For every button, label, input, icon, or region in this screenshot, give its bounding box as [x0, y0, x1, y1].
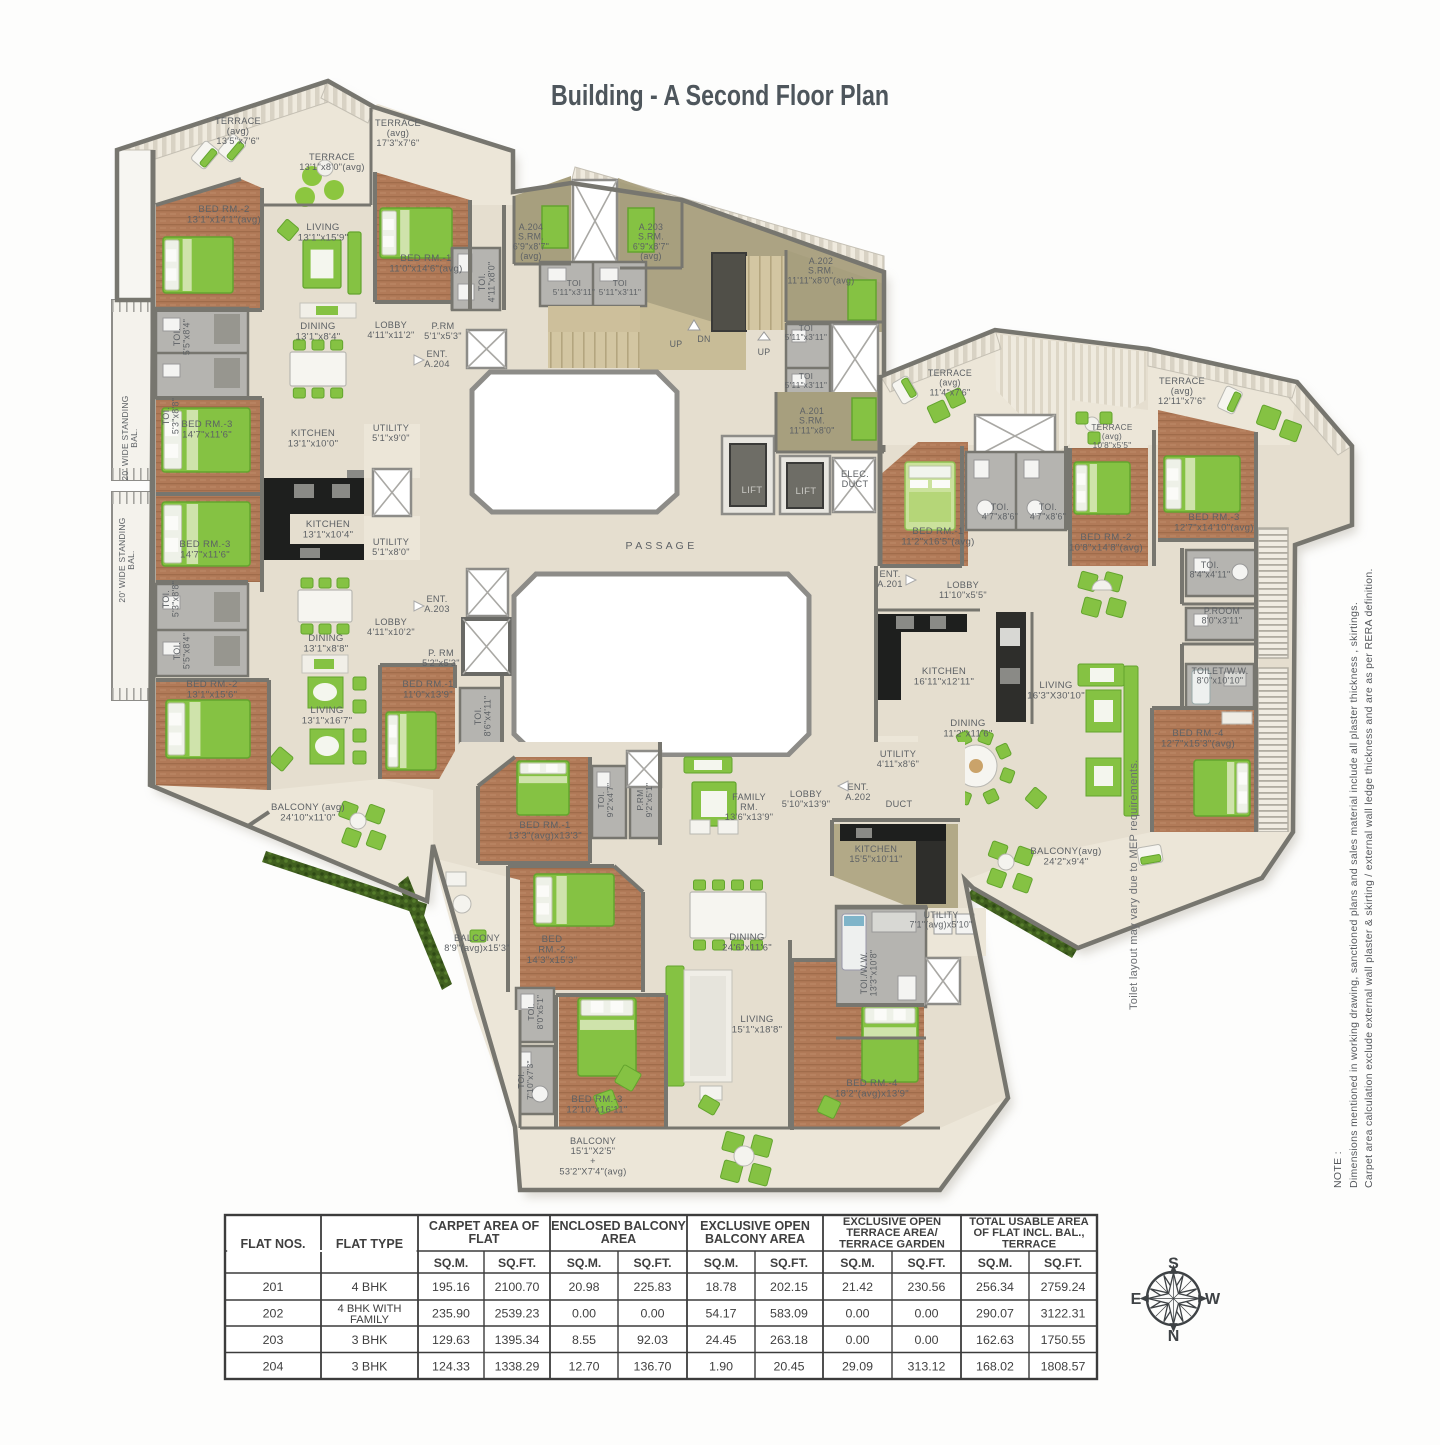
svg-text:BED RM.-314'7"x11'6": BED RM.-314'7"x11'6"	[181, 419, 232, 441]
svg-text:203: 203	[263, 1333, 284, 1347]
svg-text:0.00: 0.00	[914, 1307, 938, 1321]
svg-text:12.70: 12.70	[568, 1359, 599, 1373]
svg-text:263.18: 263.18	[770, 1333, 808, 1347]
svg-text:DINING24'6"x11'6": DINING24'6"x11'6"	[722, 932, 772, 954]
svg-text:ENT.A.202: ENT.A.202	[845, 782, 871, 802]
svg-text:230.56: 230.56	[908, 1280, 946, 1294]
svg-text:BALCONY8'9"(avg)x15'3": BALCONY8'9"(avg)x15'3"	[444, 933, 510, 953]
svg-text:92.03: 92.03	[637, 1333, 668, 1347]
svg-text:N: N	[1168, 1328, 1180, 1345]
svg-text:20.98: 20.98	[568, 1280, 599, 1294]
svg-text:UTILITY5'1"x9'0": UTILITY5'1"x9'0"	[372, 423, 410, 443]
svg-text:0.00: 0.00	[914, 1333, 938, 1347]
svg-text:P.ROOM8'0"x3'11": P.ROOM8'0"x3'11"	[1202, 606, 1243, 626]
svg-text:0.00: 0.00	[845, 1307, 869, 1321]
svg-text:1808.57: 1808.57	[1041, 1359, 1086, 1373]
svg-text:29.09: 29.09	[842, 1359, 873, 1373]
svg-text:202.15: 202.15	[770, 1280, 808, 1294]
svg-text:P A S S A G E: P A S S A G E	[625, 540, 694, 552]
svg-text:204: 204	[263, 1359, 284, 1373]
svg-text:TOI./W.W.13'3"x10'8": TOI./W.W.13'3"x10'8"	[859, 950, 879, 997]
svg-text:ENCLOSED BALCONY: ENCLOSED BALCONY	[551, 1219, 686, 1233]
svg-text:SQ.FT.: SQ.FT.	[634, 1256, 672, 1270]
svg-text:2759.24: 2759.24	[1041, 1280, 1086, 1294]
svg-text:3 BHK: 3 BHK	[352, 1359, 389, 1373]
svg-text:Toilet layout may vary due to: Toilet layout may vary due to MEP requir…	[1128, 759, 1140, 1010]
svg-text:3122.31: 3122.31	[1041, 1307, 1086, 1321]
svg-text:FAMILY: FAMILY	[350, 1314, 389, 1326]
svg-text:SQ.M.: SQ.M.	[434, 1256, 469, 1270]
svg-text:FLAT: FLAT	[468, 1232, 499, 1246]
svg-text:1338.29: 1338.29	[495, 1359, 540, 1373]
svg-text:0.00: 0.00	[640, 1307, 664, 1321]
svg-text:KITCHEN13'1"x10'4": KITCHEN13'1"x10'4"	[303, 519, 354, 541]
svg-text:S: S	[1168, 1256, 1179, 1273]
svg-text:18.78: 18.78	[705, 1280, 736, 1294]
svg-text:SQ.FT.: SQ.FT.	[908, 1256, 946, 1270]
svg-text:UTILITY4'11"x8'6": UTILITY4'11"x8'6"	[877, 749, 920, 769]
svg-text:Building - A Second Floor Plan: Building - A Second Floor Plan	[551, 80, 889, 112]
svg-text:OF FLAT INCL. BAL.,: OF FLAT INCL. BAL.,	[973, 1227, 1084, 1239]
svg-text:24.45: 24.45	[705, 1333, 736, 1347]
svg-text:BED RM.-314'7"x11'6": BED RM.-314'7"x11'6"	[179, 539, 230, 561]
svg-text:2100.70: 2100.70	[495, 1280, 540, 1294]
svg-text:W: W	[1205, 1291, 1221, 1308]
svg-text:EXCLUSIVE OPEN: EXCLUSIVE OPEN	[700, 1219, 810, 1233]
svg-text:124.33: 124.33	[432, 1359, 470, 1373]
svg-text:Dimensions mentioned in workin: Dimensions mentioned in working drawing,…	[1348, 602, 1360, 1188]
svg-text:DUCT: DUCT	[886, 799, 913, 809]
svg-text:2539.23: 2539.23	[495, 1307, 540, 1321]
svg-text:SQ.FT.: SQ.FT.	[1044, 1256, 1082, 1270]
svg-text:583.09: 583.09	[770, 1307, 808, 1321]
svg-text:225.83: 225.83	[634, 1280, 672, 1294]
svg-text:FLAT NOS.: FLAT NOS.	[240, 1237, 305, 1251]
svg-text:NOTE :: NOTE :	[1332, 1151, 1344, 1188]
svg-text:1395.34: 1395.34	[495, 1333, 540, 1347]
svg-text:BED RM.-213'1"x15'6": BED RM.-213'1"x15'6"	[186, 679, 237, 701]
svg-text:1.90: 1.90	[709, 1359, 733, 1373]
svg-text:201: 201	[263, 1280, 284, 1294]
svg-text:195.16: 195.16	[432, 1280, 470, 1294]
svg-text:FLAT TYPE: FLAT TYPE	[336, 1237, 403, 1251]
svg-text:TERRACE AREA/: TERRACE AREA/	[846, 1227, 938, 1239]
svg-text:CARPET AREA OF: CARPET AREA OF	[429, 1219, 540, 1233]
svg-text:235.90: 235.90	[432, 1307, 470, 1321]
svg-text:DINING11'2"x11'6": DINING11'2"x11'6"	[943, 718, 992, 740]
svg-text:129.63: 129.63	[432, 1333, 470, 1347]
svg-text:UP: UP	[670, 339, 683, 349]
svg-text:KITCHEN16'11"x12'11": KITCHEN16'11"x12'11"	[914, 666, 974, 688]
svg-text:21.42: 21.42	[842, 1280, 873, 1294]
svg-text:TERRACE GARDEN: TERRACE GARDEN	[839, 1239, 945, 1251]
svg-text:AREA: AREA	[601, 1232, 636, 1246]
svg-text:20.45: 20.45	[773, 1359, 804, 1373]
svg-text:0.00: 0.00	[572, 1307, 596, 1321]
svg-text:KITCHEN15'5"x10'11": KITCHEN15'5"x10'11"	[849, 844, 902, 864]
svg-text:TOILET/W.W.8'0"x10'10": TOILET/W.W.8'0"x10'10"	[1192, 666, 1249, 686]
svg-text:ENT.A.201: ENT.A.201	[877, 569, 903, 589]
svg-text:BALCONY AREA: BALCONY AREA	[705, 1232, 805, 1246]
svg-text:SQ.M.: SQ.M.	[978, 1256, 1013, 1270]
svg-text:Carpet area calculation exclud: Carpet area calculation exclude external…	[1363, 568, 1375, 1188]
svg-text:KITCHEN13'1"x10'0": KITCHEN13'1"x10'0"	[288, 428, 339, 450]
svg-text:BED RM.-111'0"x13'9": BED RM.-111'0"x13'9"	[402, 679, 453, 701]
svg-text:54.17: 54.17	[705, 1307, 736, 1321]
svg-text:BED RM.-312'10"x16'11": BED RM.-312'10"x16'11"	[566, 1094, 627, 1116]
svg-text:4 BHK: 4 BHK	[352, 1280, 389, 1294]
svg-text:8.55: 8.55	[572, 1333, 596, 1347]
svg-text:ENT.A.204: ENT.A.204	[424, 349, 450, 369]
svg-text:UP: UP	[758, 347, 771, 357]
svg-text:168.02: 168.02	[976, 1359, 1014, 1373]
svg-text:E: E	[1131, 1291, 1142, 1308]
svg-text:SQ.M.: SQ.M.	[567, 1256, 602, 1270]
svg-text:BALCONY (avg)24'10"x11'0": BALCONY (avg)24'10"x11'0"	[271, 802, 345, 824]
svg-text:LIFT: LIFT	[796, 486, 817, 497]
svg-text:202: 202	[263, 1307, 284, 1321]
svg-text:ENT.A.203: ENT.A.203	[424, 594, 450, 614]
svg-text:DINING13'1"x8'4": DINING13'1"x8'4"	[296, 321, 341, 343]
svg-text:3 BHK: 3 BHK	[352, 1333, 389, 1347]
svg-text:SQ.M.: SQ.M.	[840, 1256, 875, 1270]
svg-text:DINING13'1"x8'8": DINING13'1"x8'8"	[304, 633, 349, 655]
svg-text:136.70: 136.70	[634, 1359, 672, 1373]
svg-text:SQ.M.: SQ.M.	[704, 1256, 739, 1270]
svg-text:313.12: 313.12	[908, 1359, 946, 1373]
svg-text:ELEC.DUCT: ELEC.DUCT	[841, 469, 869, 489]
svg-text:1750.55: 1750.55	[1041, 1333, 1086, 1347]
svg-text:TERRACE13'1"x8'0"(avg): TERRACE13'1"x8'0"(avg)	[299, 152, 365, 172]
svg-text:TOTAL USABLE AREA: TOTAL USABLE AREA	[969, 1216, 1089, 1228]
svg-text:SQ.FT.: SQ.FT.	[498, 1256, 536, 1270]
svg-text:UTILITY5'1"x8'0": UTILITY5'1"x8'0"	[372, 537, 410, 557]
svg-text:TERRACE: TERRACE	[1002, 1239, 1057, 1251]
svg-text:290.07: 290.07	[976, 1307, 1014, 1321]
svg-text:DN: DN	[697, 334, 710, 344]
svg-text:SQ.FT.: SQ.FT.	[770, 1256, 808, 1270]
svg-text:EXCLUSIVE OPEN: EXCLUSIVE OPEN	[843, 1216, 941, 1228]
svg-text:LIFT: LIFT	[742, 485, 763, 496]
svg-text:162.63: 162.63	[976, 1333, 1014, 1347]
svg-text:0.00: 0.00	[845, 1333, 869, 1347]
svg-text:256.34: 256.34	[976, 1280, 1014, 1294]
